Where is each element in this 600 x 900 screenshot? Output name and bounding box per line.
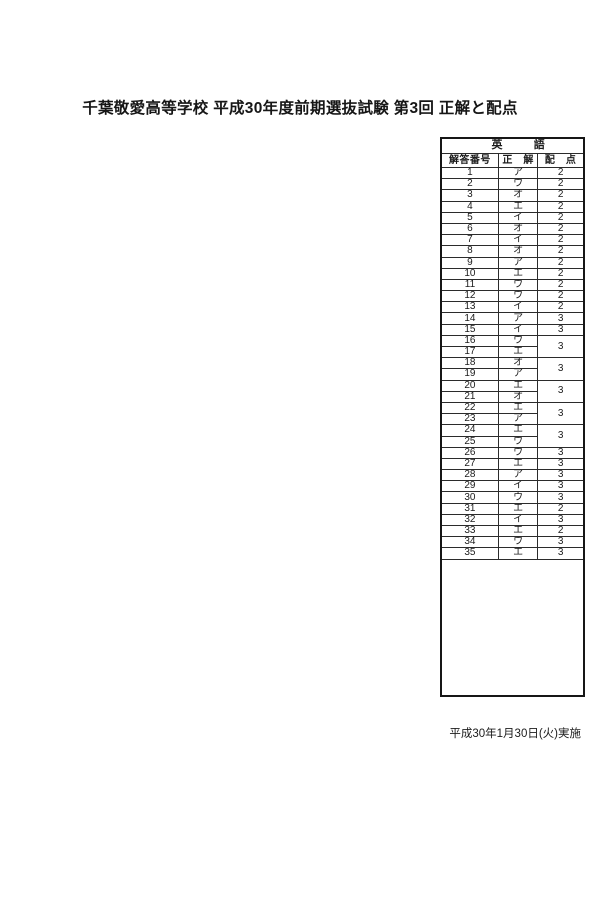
- table-row: 8オ2: [442, 246, 583, 257]
- points-cell: 3: [538, 313, 583, 324]
- correct-answer-cell: エ: [498, 268, 537, 279]
- correct-answer-cell: オ: [498, 190, 537, 201]
- table-row: 16ウ3: [442, 335, 583, 346]
- table-row: 6オ2: [442, 223, 583, 234]
- answer-table-frame: 英 語 解答番号 正 解 配 点 1ア22ウ23オ24エ25イ26オ27イ28オ…: [440, 137, 585, 697]
- answer-number-cell: 11: [442, 279, 498, 290]
- table-row: 30ウ3: [442, 492, 583, 503]
- correct-answer-cell: ウ: [498, 447, 537, 458]
- page-title: 千葉敬愛高等学校 平成30年度前期選抜試験 第3回 正解と配点: [0, 96, 600, 118]
- table-row: 24エ3: [442, 425, 583, 436]
- points-cell: 3: [538, 514, 583, 525]
- col-header-answer-number: 解答番号: [442, 154, 498, 168]
- points-cell: 2: [538, 503, 583, 514]
- correct-answer-cell: イ: [498, 212, 537, 223]
- table-row: 29イ3: [442, 481, 583, 492]
- table-row: 9ア2: [442, 257, 583, 268]
- correct-answer-cell: オ: [498, 223, 537, 234]
- correct-answer-cell: イ: [498, 514, 537, 525]
- points-cell: 2: [538, 235, 583, 246]
- answer-number-cell: 31: [442, 503, 498, 514]
- correct-answer-cell: ア: [498, 257, 537, 268]
- correct-answer-cell: オ: [498, 391, 537, 402]
- answer-number-cell: 26: [442, 447, 498, 458]
- answer-number-cell: 5: [442, 212, 498, 223]
- points-cell: 3: [538, 492, 583, 503]
- points-cell: 3: [538, 447, 583, 458]
- answer-number-cell: 34: [442, 537, 498, 548]
- table-row: 26ウ3: [442, 447, 583, 458]
- answer-number-cell: 28: [442, 470, 498, 481]
- answer-number-cell: 24: [442, 425, 498, 436]
- correct-answer-cell: エ: [498, 402, 537, 413]
- correct-answer-cell: ウ: [498, 537, 537, 548]
- points-cell: 3: [538, 537, 583, 548]
- table-row: 1ア2: [442, 168, 583, 179]
- correct-answer-cell: エ: [498, 458, 537, 469]
- answer-number-cell: 25: [442, 436, 498, 447]
- correct-answer-cell: イ: [498, 481, 537, 492]
- points-cell: 2: [538, 257, 583, 268]
- points-cell: 2: [538, 302, 583, 313]
- correct-answer-cell: イ: [498, 302, 537, 313]
- correct-answer-cell: ア: [498, 313, 537, 324]
- answer-number-cell: 9: [442, 257, 498, 268]
- table-row: 27エ3: [442, 458, 583, 469]
- exam-date-label: 平成30年1月30日(火)実施: [436, 725, 581, 741]
- table-row: 18オ3: [442, 358, 583, 369]
- table-row: 7イ2: [442, 235, 583, 246]
- answer-number-cell: 12: [442, 291, 498, 302]
- points-cell: 2: [538, 268, 583, 279]
- correct-answer-cell: エ: [498, 380, 537, 391]
- answer-number-cell: 1: [442, 168, 498, 179]
- answer-table-body: 1ア22ウ23オ24エ25イ26オ27イ28オ29ア210エ211ウ212ウ21…: [442, 168, 583, 560]
- points-cell: 3: [538, 481, 583, 492]
- answer-number-cell: 10: [442, 268, 498, 279]
- points-cell: 2: [538, 201, 583, 212]
- subject-header-cell: 英 語: [442, 139, 583, 154]
- points-cell: 3: [538, 458, 583, 469]
- correct-answer-cell: ア: [498, 470, 537, 481]
- correct-answer-cell: ア: [498, 369, 537, 380]
- correct-answer-cell: エ: [498, 548, 537, 559]
- correct-answer-cell: ア: [498, 168, 537, 179]
- col-header-correct-answer: 正 解: [498, 154, 537, 168]
- table-row: 12ウ2: [442, 291, 583, 302]
- answer-number-cell: 15: [442, 324, 498, 335]
- table-row: 2ウ2: [442, 179, 583, 190]
- points-cell: 3: [538, 548, 583, 559]
- subject-header-row: 英 語: [442, 139, 583, 154]
- answer-number-cell: 3: [442, 190, 498, 201]
- correct-answer-cell: エ: [498, 526, 537, 537]
- table-row: 5イ2: [442, 212, 583, 223]
- answer-number-cell: 29: [442, 481, 498, 492]
- points-cell: 3: [538, 425, 583, 447]
- correct-answer-cell: ウ: [498, 335, 537, 346]
- points-cell: 3: [538, 402, 583, 424]
- answer-number-cell: 27: [442, 458, 498, 469]
- table-row: 35エ3: [442, 548, 583, 559]
- correct-answer-cell: ウ: [498, 279, 537, 290]
- points-cell: 3: [538, 335, 583, 357]
- correct-answer-cell: エ: [498, 425, 537, 436]
- table-row: 11ウ2: [442, 279, 583, 290]
- correct-answer-cell: エ: [498, 201, 537, 212]
- table-row: 31エ2: [442, 503, 583, 514]
- answer-number-cell: 14: [442, 313, 498, 324]
- column-header-row: 解答番号 正 解 配 点: [442, 154, 583, 168]
- correct-answer-cell: ウ: [498, 492, 537, 503]
- points-cell: 3: [538, 380, 583, 402]
- answer-number-cell: 17: [442, 347, 498, 358]
- points-cell: 2: [538, 212, 583, 223]
- table-row: 10エ2: [442, 268, 583, 279]
- correct-answer-cell: エ: [498, 503, 537, 514]
- answer-number-cell: 30: [442, 492, 498, 503]
- points-cell: 2: [538, 223, 583, 234]
- table-row: 15イ3: [442, 324, 583, 335]
- table-row: 13イ2: [442, 302, 583, 313]
- answer-number-cell: 23: [442, 414, 498, 425]
- correct-answer-cell: ウ: [498, 436, 537, 447]
- answer-number-cell: 20: [442, 380, 498, 391]
- answer-number-cell: 7: [442, 235, 498, 246]
- correct-answer-cell: イ: [498, 324, 537, 335]
- points-cell: 2: [538, 168, 583, 179]
- table-row: 3オ2: [442, 190, 583, 201]
- correct-answer-cell: ウ: [498, 179, 537, 190]
- answer-number-cell: 35: [442, 548, 498, 559]
- correct-answer-cell: オ: [498, 246, 537, 257]
- answer-number-cell: 33: [442, 526, 498, 537]
- points-cell: 2: [538, 526, 583, 537]
- answer-number-cell: 4: [442, 201, 498, 212]
- col-header-points: 配 点: [538, 154, 583, 168]
- correct-answer-cell: イ: [498, 235, 537, 246]
- points-cell: 2: [538, 279, 583, 290]
- points-cell: 2: [538, 291, 583, 302]
- answer-number-cell: 16: [442, 335, 498, 346]
- answer-number-cell: 19: [442, 369, 498, 380]
- table-row: 32イ3: [442, 514, 583, 525]
- table-row: 28ア3: [442, 470, 583, 481]
- table-row: 34ウ3: [442, 537, 583, 548]
- answer-table: 英 語 解答番号 正 解 配 点 1ア22ウ23オ24エ25イ26オ27イ28オ…: [442, 139, 583, 560]
- correct-answer-cell: オ: [498, 358, 537, 369]
- points-cell: 2: [538, 179, 583, 190]
- correct-answer-cell: ア: [498, 414, 537, 425]
- answer-number-cell: 8: [442, 246, 498, 257]
- answer-number-cell: 13: [442, 302, 498, 313]
- answer-number-cell: 32: [442, 514, 498, 525]
- points-cell: 3: [538, 324, 583, 335]
- points-cell: 2: [538, 190, 583, 201]
- points-cell: 3: [538, 358, 583, 380]
- table-row: 14ア3: [442, 313, 583, 324]
- table-row: 22エ3: [442, 402, 583, 413]
- subject-label-right: 語: [534, 140, 545, 151]
- table-row: 33エ2: [442, 526, 583, 537]
- subject-label-left: 英: [491, 140, 502, 151]
- correct-answer-cell: エ: [498, 347, 537, 358]
- points-cell: 2: [538, 246, 583, 257]
- table-row: 20エ3: [442, 380, 583, 391]
- answer-number-cell: 22: [442, 402, 498, 413]
- correct-answer-cell: ウ: [498, 291, 537, 302]
- answer-number-cell: 2: [442, 179, 498, 190]
- table-row: 4エ2: [442, 201, 583, 212]
- answer-number-cell: 18: [442, 358, 498, 369]
- points-cell: 3: [538, 470, 583, 481]
- answer-number-cell: 21: [442, 391, 498, 402]
- answer-number-cell: 6: [442, 223, 498, 234]
